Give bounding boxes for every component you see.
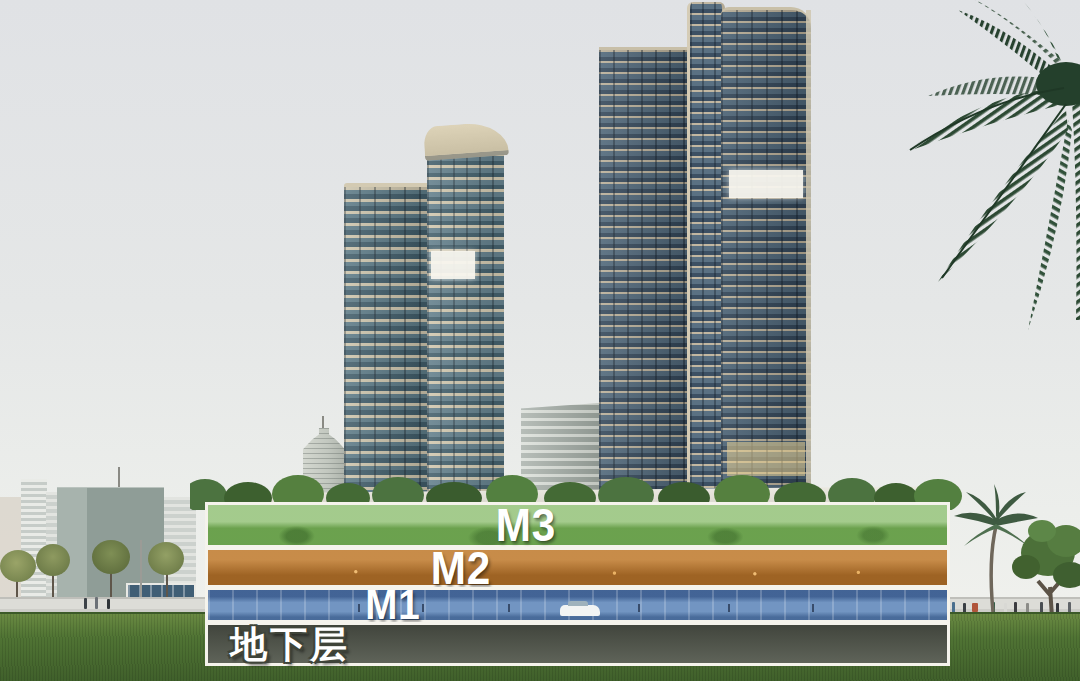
band-m1-label: M1 xyxy=(365,584,421,626)
band-m3-label: M3 xyxy=(496,502,557,548)
car-window xyxy=(568,601,588,606)
pedestrian xyxy=(84,598,87,609)
band-m1: M1 xyxy=(205,587,950,623)
lit-floors xyxy=(431,251,475,279)
lit-floors xyxy=(729,170,803,198)
spire-antenna xyxy=(322,416,324,430)
tree-foliage xyxy=(1012,520,1080,588)
tower-right-slab xyxy=(721,7,811,511)
people-silhouette xyxy=(358,604,360,612)
tower-right-core-slab xyxy=(687,2,725,511)
car-visual xyxy=(560,605,600,616)
leafy-tree xyxy=(1008,505,1080,620)
people-silhouette xyxy=(812,604,814,612)
street-tree xyxy=(148,542,184,575)
band-basement: 地下层 xyxy=(205,622,950,666)
pedestrian xyxy=(107,599,110,609)
street-tree xyxy=(0,550,36,582)
band-m2-label: M2 xyxy=(431,545,492,591)
people-silhouette xyxy=(508,604,510,612)
rooftop-antenna xyxy=(118,467,120,489)
band-m2: M2 xyxy=(205,547,950,588)
palm-frond-group xyxy=(906,0,1080,330)
people-silhouette xyxy=(728,604,730,612)
street-tree xyxy=(36,544,70,576)
band-m3: M3 xyxy=(205,502,950,548)
palm-trunk xyxy=(991,526,996,612)
street-tree xyxy=(92,540,130,574)
distant-tower xyxy=(21,479,47,609)
pedestrian xyxy=(95,597,98,609)
people-silhouette xyxy=(422,604,424,612)
tower-right-left-slab xyxy=(599,47,691,511)
people-silhouette xyxy=(638,604,640,612)
architectural-rendering: M3 M2 M1 地下层 xyxy=(0,0,1080,681)
palm-fronds xyxy=(810,0,1080,350)
band-basement-label: 地下层 xyxy=(230,626,350,663)
